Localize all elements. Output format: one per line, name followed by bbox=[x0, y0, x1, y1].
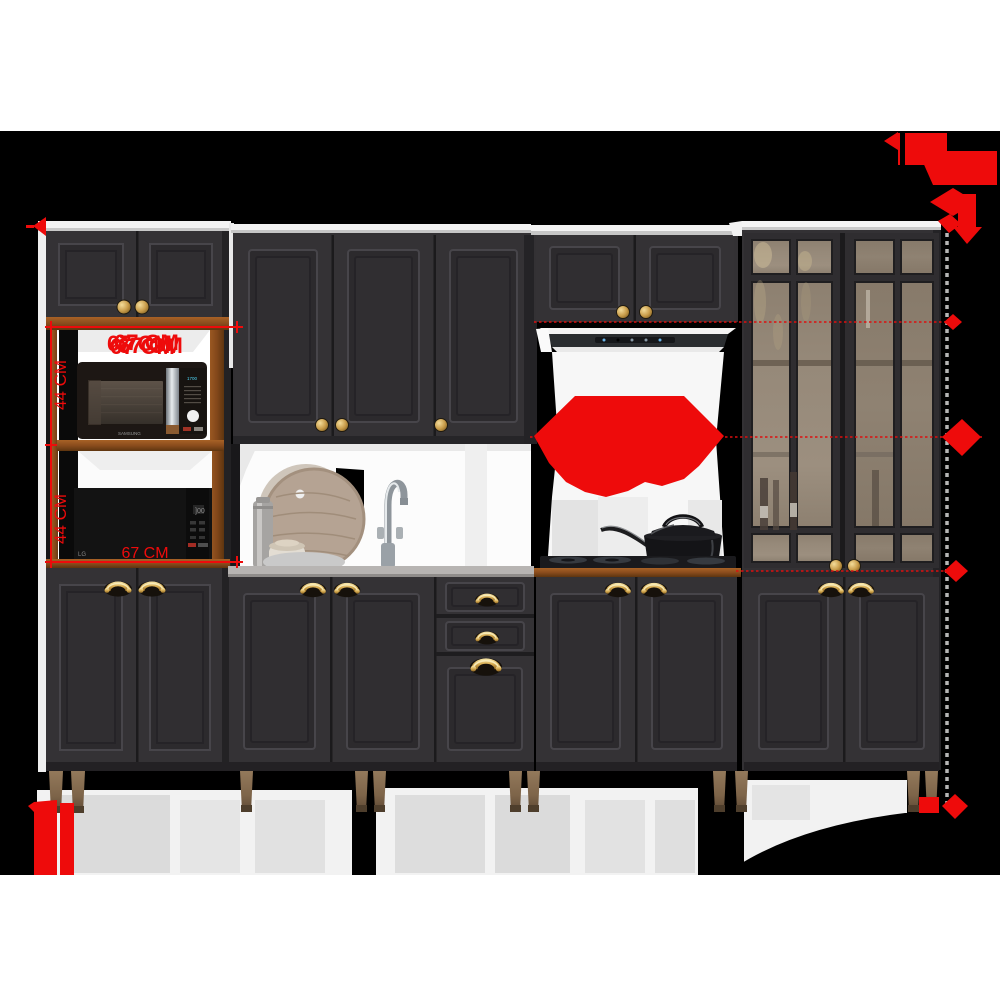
svg-text:44 CM: 44 CM bbox=[51, 494, 70, 544]
svg-text:SAMSUNG: SAMSUNG bbox=[118, 431, 141, 436]
svg-text:44 CM: 44 CM bbox=[51, 360, 70, 410]
svg-text:67 CM: 67 CM bbox=[121, 545, 168, 562]
svg-text:]00: ]00 bbox=[195, 508, 205, 515]
svg-text:67 CM: 67 CM bbox=[118, 333, 183, 358]
svg-text:LG: LG bbox=[78, 552, 86, 558]
svg-text:1700: 1700 bbox=[187, 376, 198, 381]
